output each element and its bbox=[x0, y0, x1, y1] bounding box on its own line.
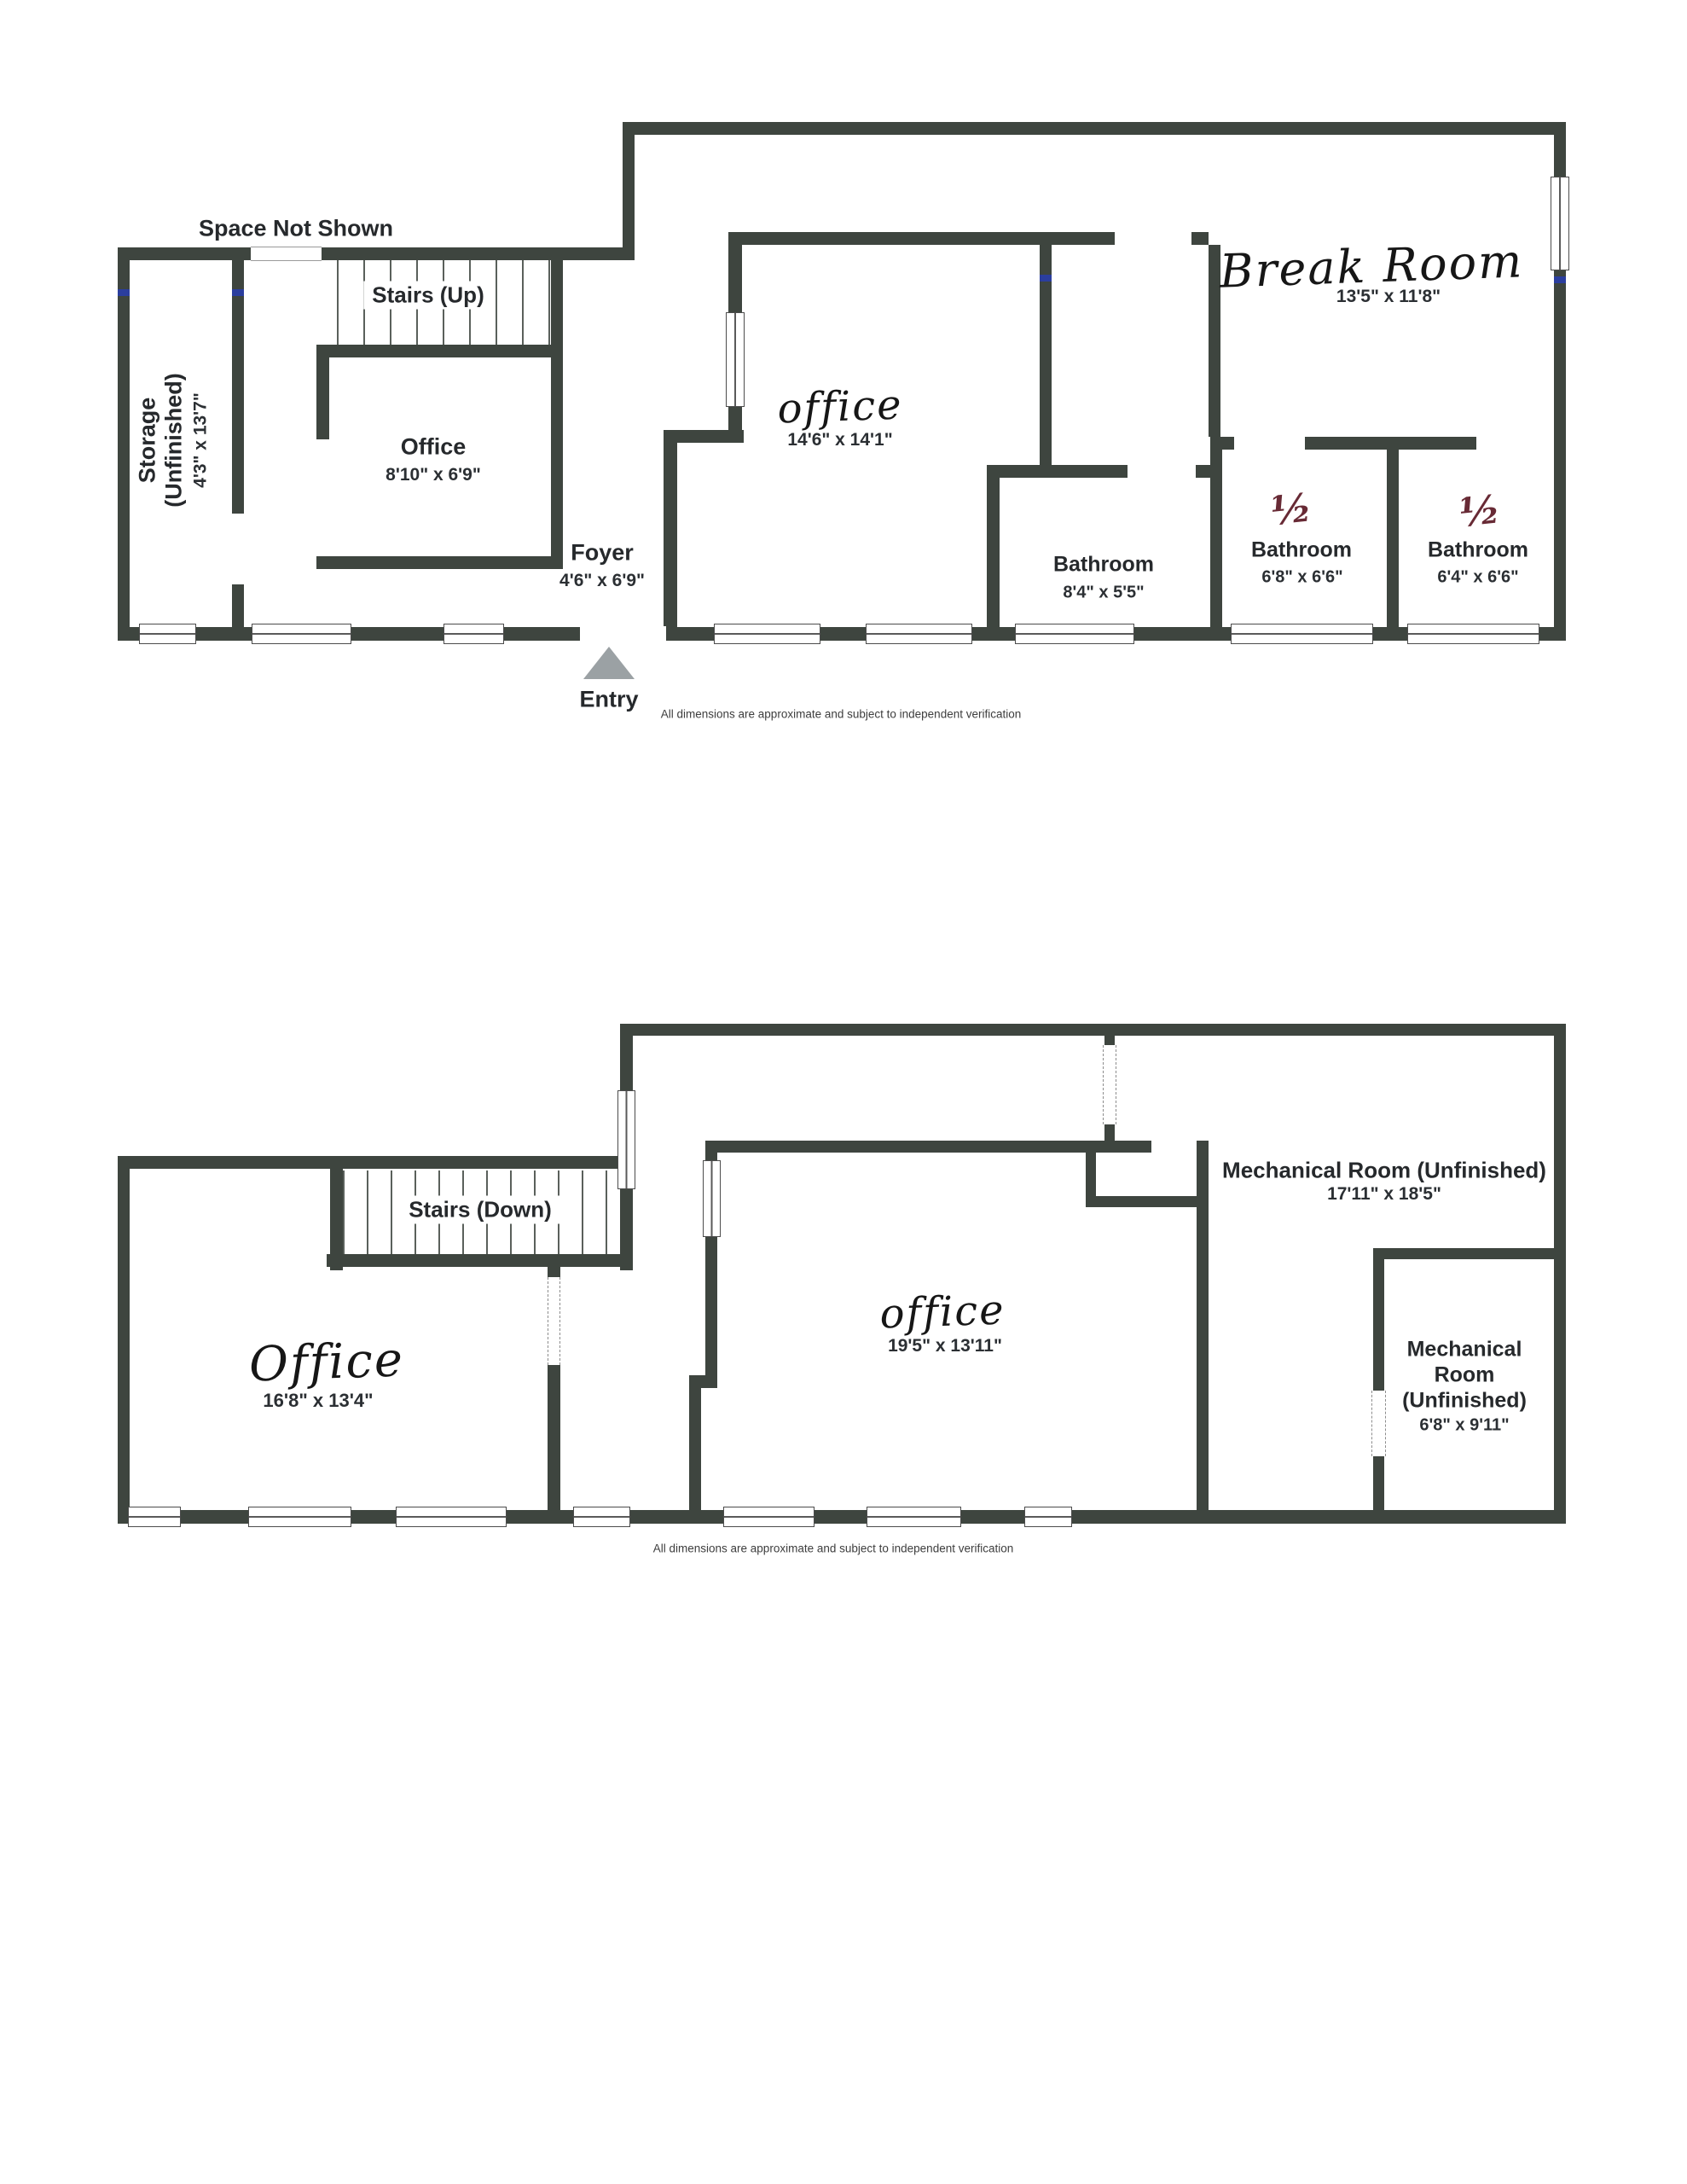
label-mechanical-room-small-1: Mechanical bbox=[1407, 1338, 1522, 1362]
window bbox=[714, 624, 820, 644]
window bbox=[1024, 1507, 1072, 1527]
label-foyer: Foyer bbox=[571, 540, 634, 566]
wall bbox=[705, 1141, 1151, 1153]
wall bbox=[330, 1156, 343, 1270]
wall bbox=[1191, 232, 1209, 245]
wall bbox=[689, 1388, 701, 1510]
window bbox=[252, 624, 351, 644]
blue-scan-mark bbox=[118, 289, 130, 296]
window bbox=[617, 1090, 635, 1189]
dims-half-bathroom-2: 6'4" x 6'6" bbox=[1437, 568, 1518, 588]
wall bbox=[664, 443, 677, 627]
wall bbox=[689, 1375, 717, 1388]
wall bbox=[232, 584, 244, 641]
wall bbox=[1209, 245, 1220, 437]
label-mechanical-room-small-3: (Unfinished) bbox=[1402, 1389, 1527, 1414]
wall bbox=[551, 260, 563, 569]
wall bbox=[322, 247, 623, 260]
label-stairs-down: Stairs (Down) bbox=[400, 1196, 560, 1224]
label-half-bathroom-1: Bathroom bbox=[1251, 538, 1352, 563]
window bbox=[1015, 624, 1134, 644]
label-office-small: Office bbox=[401, 434, 467, 461]
window bbox=[726, 312, 745, 407]
window bbox=[866, 624, 972, 644]
dims-office-main: 14'6" x 14'1" bbox=[787, 430, 892, 450]
wall bbox=[1104, 1034, 1115, 1045]
wall bbox=[1221, 437, 1234, 450]
wall bbox=[327, 1254, 633, 1267]
blue-scan-mark bbox=[1040, 275, 1052, 282]
window bbox=[248, 1507, 351, 1527]
label-storage: Storage (Unfinished) 4'3" x 13'7" bbox=[135, 373, 214, 507]
floor-plan-scan: Space Not Shown Stairs (Up) Storage (Unf… bbox=[0, 0, 1687, 2184]
label-entry: Entry bbox=[579, 687, 638, 713]
wall bbox=[623, 122, 635, 260]
wall bbox=[1104, 1124, 1115, 1141]
wall bbox=[1387, 450, 1399, 627]
wall bbox=[1305, 437, 1476, 450]
wall bbox=[548, 1267, 560, 1277]
wall bbox=[118, 1156, 130, 1524]
dims-bathroom: 8'4" x 5'5" bbox=[1063, 584, 1144, 603]
label-space-not-shown: Space Not Shown bbox=[199, 216, 393, 242]
wall bbox=[623, 122, 1566, 135]
dims-foyer: 4'6" x 6'9" bbox=[559, 571, 645, 591]
label-half-bathroom-2: Bathroom bbox=[1428, 538, 1528, 563]
wall bbox=[728, 232, 1052, 245]
wall bbox=[987, 478, 1000, 627]
wall bbox=[1373, 1248, 1384, 1391]
wall bbox=[1210, 437, 1222, 627]
label-half-fraction-2: ½ bbox=[1457, 486, 1502, 537]
wall bbox=[548, 1365, 560, 1510]
door-opening bbox=[548, 1277, 560, 1365]
window bbox=[1551, 177, 1569, 270]
wall bbox=[1052, 232, 1115, 245]
wall bbox=[316, 357, 329, 439]
wall bbox=[987, 465, 1128, 478]
wall bbox=[1197, 1141, 1209, 1510]
dims-office-small: 8'10" x 6'9" bbox=[386, 465, 481, 485]
wall bbox=[705, 1141, 717, 1160]
wall bbox=[1554, 1024, 1566, 1524]
window bbox=[573, 1507, 630, 1527]
window bbox=[723, 1507, 815, 1527]
label-bathroom: Bathroom bbox=[1053, 553, 1154, 578]
entry-arrow-icon bbox=[583, 647, 635, 679]
window bbox=[139, 624, 196, 644]
label-mechanical-room-large: Mechanical Room (Unfinished) bbox=[1222, 1158, 1546, 1184]
disclaimer-lower: All dimensions are approximate and subje… bbox=[653, 1542, 1014, 1555]
window bbox=[867, 1507, 961, 1527]
dims-office-left: 16'8" x 13'4" bbox=[263, 1390, 373, 1412]
label-stairs-up: Stairs (Up) bbox=[363, 282, 492, 310]
wall bbox=[118, 247, 251, 260]
wall bbox=[1086, 1196, 1197, 1207]
dims-mechanical-room-large: 17'11" x 18'5" bbox=[1327, 1184, 1441, 1205]
window bbox=[396, 1507, 507, 1527]
entry-door-opening bbox=[580, 626, 666, 642]
window bbox=[128, 1507, 181, 1527]
label-office-center-handwritten: office bbox=[879, 1286, 1006, 1338]
storage-name2: (Unfinished) bbox=[161, 373, 188, 507]
window bbox=[1407, 624, 1539, 644]
window bbox=[703, 1160, 721, 1237]
door-opening bbox=[1371, 1391, 1386, 1456]
wall-opening bbox=[251, 247, 322, 261]
window bbox=[1231, 624, 1373, 644]
blue-scan-mark bbox=[232, 289, 244, 296]
dims-office-center: 19'5" x 13'11" bbox=[888, 1336, 1002, 1356]
label-mechanical-room-small-2: Room bbox=[1435, 1363, 1495, 1388]
label-office-main-handwritten: office bbox=[777, 380, 904, 433]
wall bbox=[232, 247, 244, 514]
disclaimer-upper: All dimensions are approximate and subje… bbox=[661, 708, 1022, 721]
window bbox=[443, 624, 504, 644]
blue-scan-mark bbox=[1554, 276, 1566, 283]
wall bbox=[118, 247, 130, 641]
wall bbox=[728, 245, 742, 312]
wall bbox=[620, 1024, 633, 1090]
wall bbox=[1373, 1248, 1566, 1259]
storage-dims: 4'3" x 13'7" bbox=[188, 373, 214, 507]
dims-mechanical-room-small: 6'8" x 9'11" bbox=[1419, 1416, 1509, 1436]
dims-half-bathroom-1: 6'8" x 6'6" bbox=[1261, 568, 1342, 588]
storage-name: Storage bbox=[135, 373, 161, 507]
wall bbox=[1373, 1456, 1384, 1510]
wall bbox=[118, 1156, 633, 1169]
wall bbox=[316, 556, 563, 569]
door-opening bbox=[1103, 1045, 1116, 1124]
wall bbox=[705, 1237, 717, 1375]
wall bbox=[664, 430, 744, 443]
label-office-left-handwritten: Office bbox=[248, 1332, 405, 1392]
wall bbox=[620, 1024, 1566, 1036]
dims-break-room: 13'5" x 11'8" bbox=[1336, 287, 1441, 307]
wall bbox=[316, 345, 563, 357]
label-half-fraction-1: ½ bbox=[1268, 485, 1313, 535]
